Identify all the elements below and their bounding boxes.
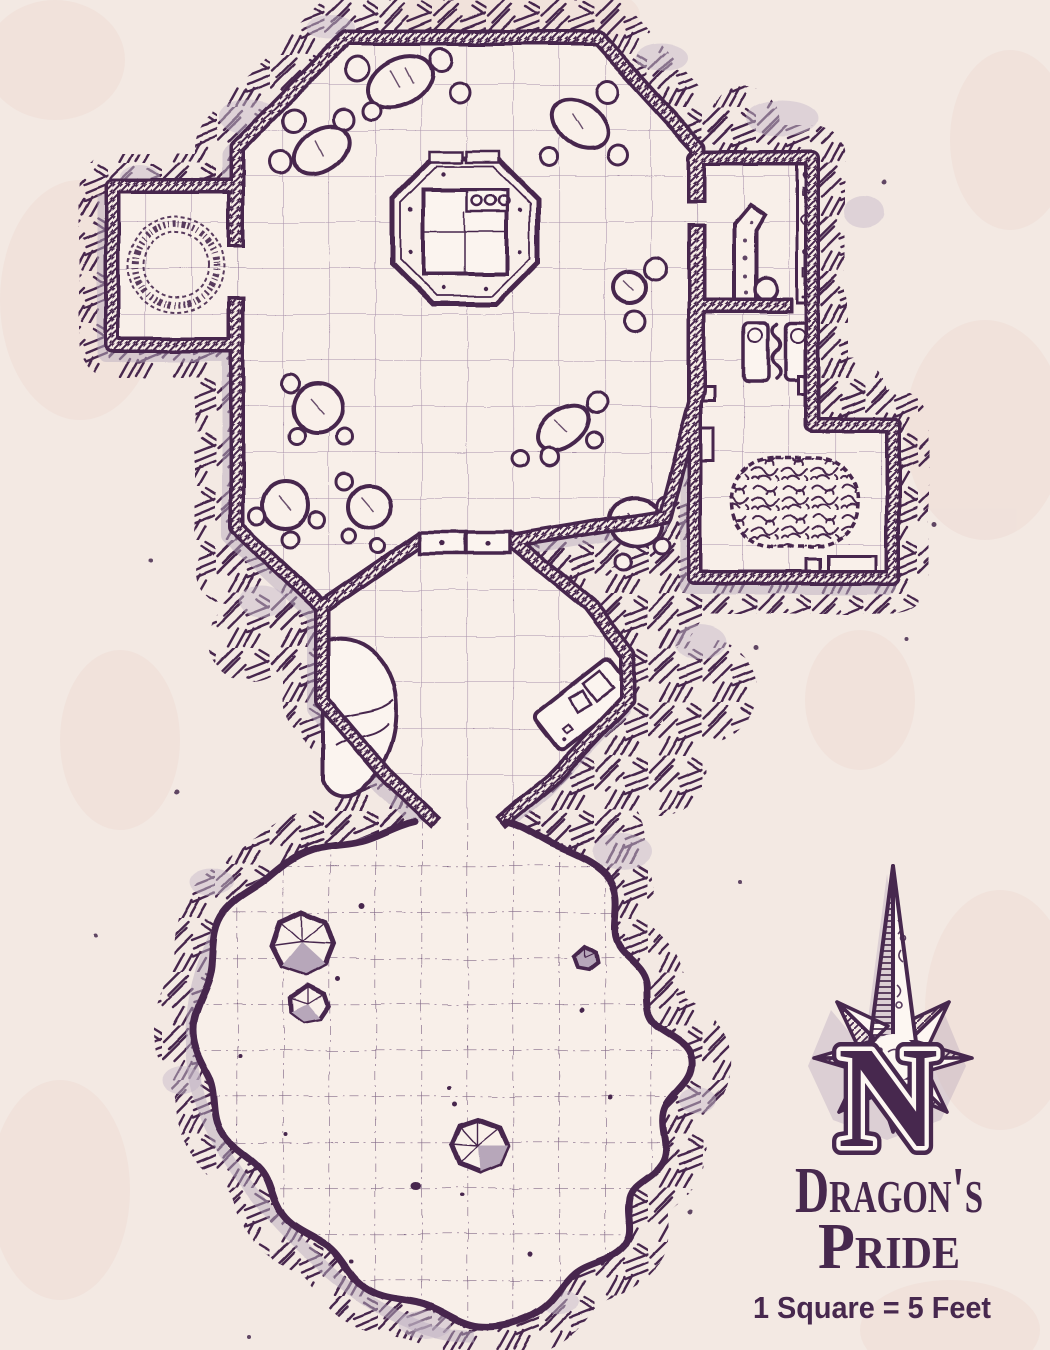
bed <box>744 323 769 381</box>
title-line-2: Pride <box>818 1210 960 1283</box>
stalagmite <box>272 912 334 974</box>
scale-note: 1 Square = 5 Feet <box>753 1290 991 1325</box>
double-door <box>420 532 510 553</box>
stalagmite <box>452 1120 508 1172</box>
stool <box>755 278 777 300</box>
map-title: Dragon's Pride <box>795 1154 983 1283</box>
labyrinth-rug <box>732 457 859 547</box>
altar-slab <box>423 190 509 274</box>
dais <box>392 151 538 304</box>
dungeon-map-page: N N N Dragon's Pride 1 Square = 5 Feet <box>0 0 1050 1350</box>
dungeon-map: N N N Dragon's Pride 1 Square = 5 Feet <box>0 0 1050 1350</box>
